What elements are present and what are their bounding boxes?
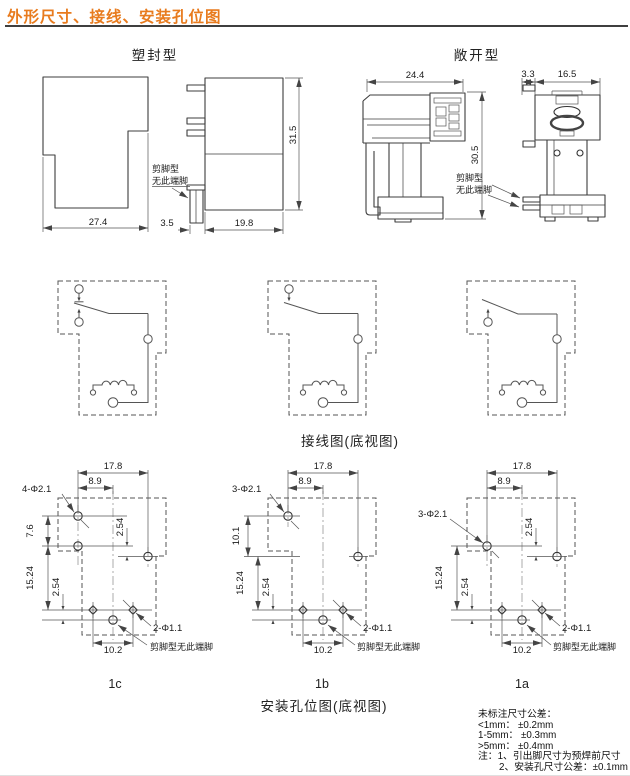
- outline-drawings: 27.4 剪脚型 无此端脚 3.5 19.8 31.5: [0, 55, 630, 243]
- dim-1c-w-inner: 8.9: [88, 476, 101, 487]
- diagram-label-1a: 1a: [492, 677, 552, 691]
- wiring-diagram-1b: [268, 281, 376, 415]
- dim-sealed-depth: 19.8: [235, 218, 254, 229]
- dim-1a-w-inner: 8.9: [497, 476, 510, 487]
- mounting-diagram-1c: 17.8 8.9 4-Φ2.1 7.6 2.54 15.24 2.54 10.2…: [22, 461, 213, 656]
- dim-1b-pitch-v: 15.24: [235, 571, 246, 595]
- dim-open-width: 24.4: [406, 70, 425, 81]
- dim-open-height: 30.5: [470, 146, 481, 165]
- dim-1c-w-outer: 17.8: [104, 461, 123, 472]
- dim-1a-w-outer: 17.8: [513, 461, 532, 472]
- wiring-diagrams: [0, 270, 630, 425]
- dim-1a-holes: 3-Φ2.1: [418, 509, 447, 520]
- dim-sealed-pin-offset: 3.5: [160, 218, 173, 229]
- dim-1a-small-holes: 2-Φ1.1: [562, 623, 591, 634]
- dim-1b-pitch-bot: 2.54: [261, 578, 272, 597]
- open-cut-pin-note-line1: 剪脚型: [456, 172, 483, 183]
- dim-sealed-width: 27.4: [89, 217, 108, 228]
- dim-1c-v-pitch: 7.6: [25, 524, 36, 537]
- note-1a: 剪脚型无此端脚: [553, 641, 616, 652]
- page-title: 外形尺寸、接线、安装孔位图: [7, 5, 222, 27]
- dim-1a-pitch-mid: 2.54: [524, 518, 535, 537]
- dim-1c-pitch-mid: 2.54: [115, 518, 126, 537]
- sealed-side-view: 剪脚型 无此端脚 3.5 19.8 31.5: [152, 78, 303, 234]
- note-1c: 剪脚型无此端脚: [150, 641, 213, 652]
- open-cut-pin-note-line2: 无此端脚: [456, 184, 492, 195]
- mounting-diagram-1a: 17.8 8.9 3-Φ2.1 2.54 15.24 2.54 10.2 2-Φ…: [418, 461, 616, 656]
- dim-1b-v-pitch: 10.1: [231, 527, 242, 546]
- dim-1c-w-bottom: 10.2: [104, 645, 123, 656]
- tolerance-title: 未标注尺寸公差：: [478, 710, 628, 721]
- wiring-diagram-1c: [58, 281, 166, 415]
- dim-open-side-width: 16.5: [558, 69, 577, 80]
- mounting-caption: 安装孔位图(底视图): [244, 695, 404, 715]
- diagram-label-1c: 1c: [85, 677, 145, 691]
- note-1b: 剪脚型无此端脚: [357, 641, 420, 652]
- dim-1a-pitch-v: 15.24: [434, 566, 445, 590]
- wiring-diagram-1a: [467, 281, 575, 415]
- tolerance-extra-2: 2、安装孔尺寸公差：±0.1mm: [478, 763, 628, 774]
- sealed-front-view: 27.4: [43, 77, 148, 232]
- title-rule: [5, 25, 628, 27]
- dim-open-pin-offset: 3.3: [521, 69, 534, 80]
- dim-1b-small-holes: 2-Φ1.1: [363, 623, 392, 634]
- dim-1b-holes: 3-Φ2.1: [232, 484, 261, 495]
- dim-1b-w-inner: 8.9: [298, 476, 311, 487]
- tolerance-notes: 未标注尺寸公差： <1mm： ±0.2mm 1-5mm： ±0.3mm >5mm…: [478, 710, 628, 773]
- dim-1c-pitch-v: 15.24: [25, 566, 36, 590]
- dim-1a-pitch-bot: 2.54: [460, 578, 471, 597]
- open-front-view: 24.4 30.5: [363, 70, 486, 222]
- dim-1c-holes: 4-Φ2.1: [22, 484, 51, 495]
- mounting-diagrams: 17.8 8.9 4-Φ2.1 7.6 2.54 15.24 2.54 10.2…: [0, 455, 630, 670]
- dim-1c-pitch-bot: 2.54: [51, 578, 62, 597]
- sealed-cut-pin-note-line1: 剪脚型: [152, 163, 179, 174]
- mounting-diagram-1b: 17.8 8.9 3-Φ2.1 10.1 15.24 2.54 10.2 2-Φ…: [231, 461, 420, 656]
- dim-1a-w-bottom: 10.2: [513, 645, 532, 656]
- datasheet-page: 外形尺寸、接线、安装孔位图 塑封型 敞开型 27.4 剪脚: [0, 0, 630, 776]
- dim-1b-w-bottom: 10.2: [314, 645, 333, 656]
- dim-sealed-height: 31.5: [288, 126, 299, 145]
- tolerance-row-2: 1-5mm： ±0.3mm: [478, 731, 628, 742]
- sealed-cut-pin-note-line2: 无此端脚: [152, 175, 188, 186]
- dim-1c-small-holes: 2-Φ1.1: [153, 623, 182, 634]
- diagram-label-1b: 1b: [292, 677, 352, 691]
- wiring-caption: 接线图(底视图): [230, 430, 470, 450]
- tolerance-extra-1: 注：1、引出脚尺寸为预焊前尺寸: [478, 752, 628, 763]
- dim-1b-w-outer: 17.8: [314, 461, 333, 472]
